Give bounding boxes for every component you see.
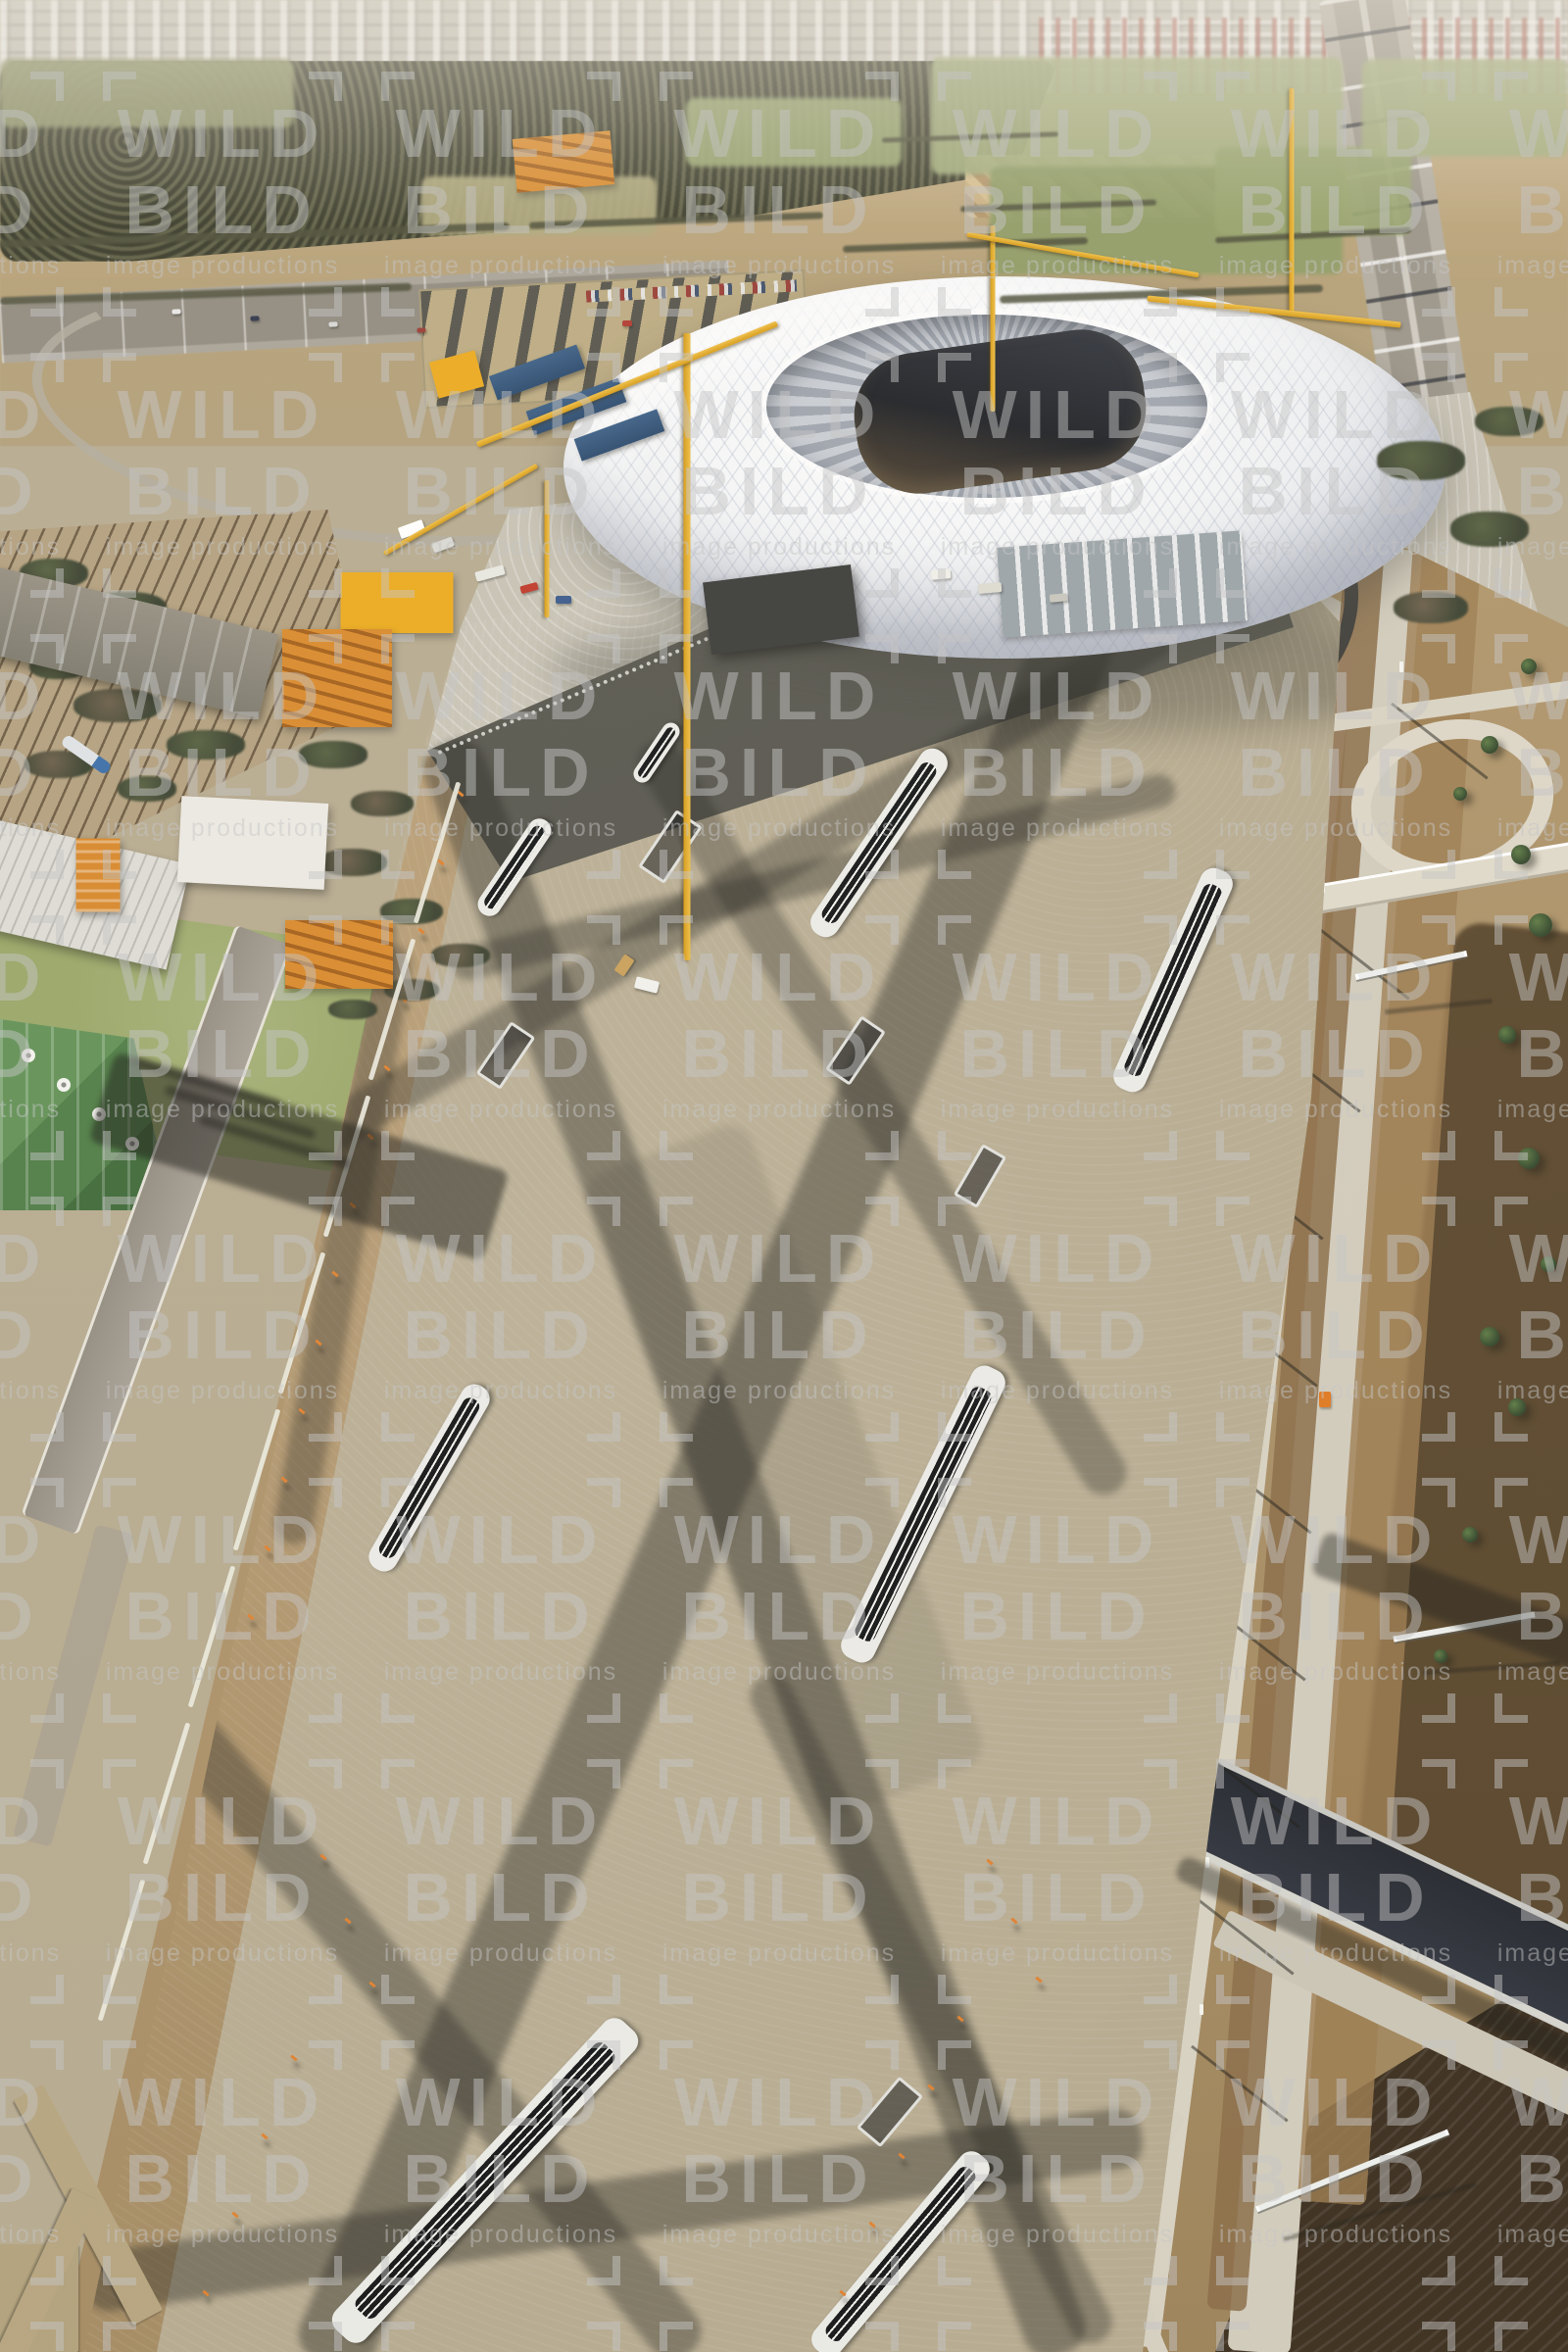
watermark-word: BILD — [936, 2144, 1179, 2213]
watermark-word: BILD — [0, 1019, 66, 1088]
watermark-word: WILD — [936, 380, 1179, 449]
watermark-corner-mark — [587, 568, 620, 598]
watermark-word: WILD — [1214, 943, 1457, 1011]
watermark-word: BILD — [101, 2144, 344, 2213]
watermark-subtitle: image productions — [1214, 1377, 1457, 1405]
site-object — [634, 976, 660, 993]
watermark-word: WILD — [1493, 661, 1568, 730]
watermark-corner-mark — [865, 287, 899, 317]
watermark-word: WILD — [1493, 380, 1568, 449]
watermark-subtitle: image productions — [1214, 252, 1457, 280]
watermark-word: BILD — [0, 457, 66, 525]
watermark-word: BILD — [0, 738, 66, 807]
watermark-word: WILD — [0, 380, 66, 449]
watermark-word: WILD — [936, 661, 1179, 730]
watermark-corner-mark — [587, 1975, 620, 2004]
watermark-corner-mark — [1494, 287, 1528, 317]
watermark-tile: WILDBILDimage productions — [1214, 634, 1457, 879]
watermark-word: WILD — [1493, 1224, 1568, 1293]
watermark-word: WILD — [1214, 1224, 1457, 1293]
watermark-tile: WILDBILDimage productions — [379, 2040, 622, 2285]
watermark-corner-mark — [1494, 2256, 1528, 2285]
watermark-corner-mark — [30, 1975, 64, 2004]
watermark-tile: WILDBILDimage productions — [0, 1197, 66, 1442]
watermark-tile: WILDBILDimage productions — [936, 1759, 1179, 2004]
watermark-corner-mark — [1144, 568, 1177, 598]
watermark-corner-mark — [938, 1412, 971, 1442]
watermark-corner-mark — [1144, 850, 1177, 879]
watermark-tile: WILDBILDimage productions — [101, 2322, 344, 2352]
watermark-tile: WILDBILDimage productions — [379, 915, 622, 1160]
watermark-corner-mark — [1216, 568, 1249, 598]
watermark-corner-mark — [1422, 1131, 1455, 1160]
watermark-word: WILD — [379, 2068, 622, 2136]
watermark-word: BILD — [1493, 457, 1568, 525]
watermark-corner-mark — [30, 1131, 64, 1160]
watermark-word: WILD — [101, 1787, 344, 1855]
watermark-tile: WILDBILDimage productions — [936, 2322, 1179, 2352]
watermark-word: WILD — [658, 1505, 901, 1574]
watermark-subtitle: image productions — [0, 533, 66, 562]
watermark-word: WILD — [101, 99, 344, 168]
survey-stake — [839, 2290, 846, 2297]
watermark-corner-mark — [1216, 1131, 1249, 1160]
site-object — [416, 327, 425, 332]
watermark-word: BILD — [379, 457, 622, 525]
watermark-word: BILD — [658, 1300, 901, 1369]
watermark-corner-mark — [103, 1693, 136, 1723]
watermark-subtitle: image productions — [936, 1658, 1179, 1687]
watermark-word: WILD — [658, 661, 901, 730]
watermark-corner-mark — [309, 1693, 342, 1723]
watermark-corner-mark — [103, 850, 136, 879]
watermark-word: BILD — [936, 1300, 1179, 1369]
watermark-corner-mark — [1422, 2256, 1455, 2285]
watermark-subtitle: image productions — [0, 1658, 66, 1687]
watermark-subtitle: image productions — [658, 2221, 901, 2249]
watermark-word: WILD — [379, 380, 622, 449]
watermark-word: WILD — [1493, 1787, 1568, 1855]
survey-stake — [927, 2084, 934, 2091]
watermark-tile: WILDBILDimage productions — [936, 2040, 1179, 2285]
watermark-subtitle: image productions — [1493, 1377, 1568, 1405]
watermark-subtitle: image productions — [658, 1096, 901, 1124]
watermark-corner-mark — [381, 2256, 415, 2285]
watermark-subtitle: image productions — [379, 1658, 622, 1687]
watermark-word: BILD — [1214, 2144, 1457, 2213]
watermark-word: BILD — [658, 1019, 901, 1088]
watermark-subtitle: image productions — [379, 814, 622, 843]
watermark-tile: WILDBILDimage productions — [101, 1478, 344, 1723]
watermark-corner-mark — [1494, 1693, 1528, 1723]
watermark-word: WILD — [936, 943, 1179, 1011]
watermark-corner-mark — [660, 1975, 693, 2004]
watermark-subtitle: image productions — [658, 1658, 901, 1687]
watermark-corner-mark — [865, 1975, 899, 2004]
watermark-corner-mark — [1144, 1975, 1177, 2004]
watermark-subtitle: image productions — [1493, 814, 1568, 843]
watermark-word: WILD — [1493, 1505, 1568, 1574]
watermark-word: BILD — [1214, 1863, 1457, 1932]
watermark-word: WILD — [936, 2068, 1179, 2136]
watermark-word: WILD — [0, 661, 66, 730]
watermark-tile: WILDBILDimage productions — [1493, 353, 1568, 598]
watermark-tile: WILDBILDimage productions — [0, 1478, 66, 1723]
watermark-word: WILD — [658, 2068, 901, 2136]
watermark-corner-mark — [938, 568, 971, 598]
watermark-corner-mark — [938, 1975, 971, 2004]
watermark-subtitle: image productions — [379, 1377, 622, 1405]
watermark-word: WILD — [379, 1224, 622, 1293]
watermark-tile: WILDBILDimage productions — [1493, 1759, 1568, 2004]
watermark-tile: WILDBILDimage productions — [1493, 2040, 1568, 2285]
watermark-subtitle: image productions — [101, 533, 344, 562]
watermark-word: BILD — [1493, 1300, 1568, 1369]
watermark-corner-mark — [309, 568, 342, 598]
watermark-word: WILD — [101, 1505, 344, 1574]
watermark-corner-mark — [938, 850, 971, 879]
watermark-tile: WILDBILDimage productions — [658, 634, 901, 879]
survey-stake — [368, 1982, 375, 1988]
watermark-tile: WILDBILDimage productions — [0, 915, 66, 1160]
watermark-corner-mark — [938, 1693, 971, 1723]
watermark-corner-mark — [1494, 1131, 1528, 1160]
watermark-corner-mark — [587, 287, 620, 317]
watermark-corner-mark — [938, 287, 971, 317]
watermark-corner-mark — [865, 1693, 899, 1723]
watermark-tile: WILDBILDimage productions — [1214, 915, 1457, 1160]
watermark-tile: WILDBILDimage productions — [1214, 353, 1457, 598]
watermark-corner-mark — [587, 2256, 620, 2285]
watermark-corner-mark — [1422, 287, 1455, 317]
watermark-word: WILD — [1214, 1787, 1457, 1855]
watermark-tile: WILDBILDimage productions — [1214, 1759, 1457, 2004]
watermark-tile: WILDBILDimage productions — [936, 353, 1179, 598]
watermark-word: BILD — [658, 457, 901, 525]
watermark-subtitle: image productions — [0, 1377, 66, 1405]
watermark-word: WILD — [0, 1787, 66, 1855]
watermark-corner-mark — [1216, 287, 1249, 317]
watermark-word: BILD — [379, 1300, 622, 1369]
watermark-tile: WILDBILDimage productions — [1493, 72, 1568, 317]
watermark-tile: WILDBILDimage productions — [936, 1478, 1179, 1723]
watermark-subtitle: image productions — [379, 1939, 622, 1968]
watermark-tile: WILDBILDimage productions — [379, 634, 622, 879]
watermark-word: BILD — [101, 175, 344, 244]
watermark-word: WILD — [1214, 661, 1457, 730]
watermark-corner-mark — [865, 2256, 899, 2285]
watermark-word: BILD — [936, 738, 1179, 807]
watermark-word: WILD — [0, 1224, 66, 1293]
watermark-word: WILD — [1493, 2068, 1568, 2136]
site-object — [328, 321, 337, 326]
watermark-corner-mark — [381, 1975, 415, 2004]
watermark-corner-mark — [309, 1131, 342, 1160]
watermark-tile: WILDBILDimage productions — [936, 72, 1179, 317]
watermark-word: BILD — [0, 2144, 66, 2213]
survey-stake — [956, 2016, 963, 2023]
watermark-corner-mark — [1216, 1412, 1249, 1442]
watermark-subtitle: image productions — [1493, 533, 1568, 562]
watermark-corner-mark — [381, 850, 415, 879]
watermark-tile: WILDBILDimage productions — [379, 72, 622, 317]
watermark-tile: WILDBILDimage productions — [101, 2040, 344, 2285]
watermark-word: BILD — [0, 1300, 66, 1369]
watermark-subtitle: image productions — [1493, 1658, 1568, 1687]
watermark-corner-mark — [30, 850, 64, 879]
watermark-corner-mark — [1216, 1693, 1249, 1723]
watermark-word: WILD — [101, 1224, 344, 1293]
watermark-corner-mark — [865, 1131, 899, 1160]
watermark-corner-mark — [309, 2256, 342, 2285]
watermark-corner-mark — [103, 1131, 136, 1160]
watermark-word: WILD — [379, 99, 622, 168]
watermark-word: WILD — [936, 1224, 1179, 1293]
watermark-word: BILD — [1493, 1019, 1568, 1088]
watermark-word: WILD — [101, 943, 344, 1011]
watermark-word: BILD — [658, 738, 901, 807]
watermark-tile: WILDBILDimage productions — [101, 1759, 344, 2004]
watermark-corner-mark — [865, 850, 899, 879]
watermark-word: WILD — [1214, 380, 1457, 449]
aerial-photo-stadium-construction: WILDBILDimage productionsWILDBILDimage p… — [0, 0, 1568, 2352]
watermark-word: BILD — [101, 1019, 344, 1088]
watermark-word: BILD — [0, 1582, 66, 1650]
watermark-word: BILD — [1214, 457, 1457, 525]
watermark-corner-mark — [1494, 850, 1528, 879]
watermark-word: WILD — [379, 943, 622, 1011]
watermark-subtitle: image productions — [101, 1939, 344, 1968]
watermark-subtitle: image productions — [379, 1096, 622, 1124]
watermark-corner-mark — [660, 1693, 693, 1723]
watermark-word: BILD — [658, 2144, 901, 2213]
watermark-tile: WILDBILDimage productions — [101, 1197, 344, 1442]
watermark-corner-mark — [587, 1693, 620, 1723]
watermark-corner-mark — [1422, 850, 1455, 879]
watermark-corner-mark — [309, 287, 342, 317]
watermark-subtitle: image productions — [101, 1658, 344, 1687]
watermark-word: WILD — [936, 99, 1179, 168]
watermark-corner-mark — [1216, 850, 1249, 879]
watermark-corner-mark — [660, 850, 693, 879]
watermark-tile: WILDBILDimage productions — [1493, 1197, 1568, 1442]
watermark-corner-mark — [938, 1131, 971, 1160]
watermark-subtitle: image productions — [1214, 533, 1457, 562]
watermark-subtitle: image productions — [1493, 252, 1568, 280]
watermark-subtitle: image productions — [1214, 2221, 1457, 2249]
watermark-subtitle: image productions — [658, 1939, 901, 1968]
watermark-word: BILD — [379, 738, 622, 807]
watermark-tile: WILDBILDimage productions — [1493, 634, 1568, 879]
survey-stake — [202, 2290, 209, 2297]
watermark-word: BILD — [379, 1863, 622, 1932]
watermark-corner-mark — [587, 1412, 620, 1442]
watermark-word: WILD — [379, 1505, 622, 1574]
watermark-subtitle: image productions — [0, 252, 66, 280]
watermark-word: BILD — [379, 1019, 622, 1088]
watermark-tile: WILDBILDimage productions — [1214, 72, 1457, 317]
watermark-word: BILD — [1493, 1863, 1568, 1932]
watermark-corner-mark — [1422, 568, 1455, 598]
watermark-corner-mark — [1422, 1412, 1455, 1442]
watermark-corner-mark — [30, 1412, 64, 1442]
watermark-word: BILD — [1493, 1582, 1568, 1650]
watermark-corner-mark — [587, 850, 620, 879]
watermark-subtitle: image productions — [1493, 1939, 1568, 1968]
site-object — [622, 320, 632, 326]
watermark-corner-mark — [30, 287, 64, 317]
watermark-word: BILD — [1493, 738, 1568, 807]
watermark-tile: WILDBILDimage productions — [658, 353, 901, 598]
survey-stake — [349, 1202, 356, 1209]
watermark-corner-mark — [1422, 1693, 1455, 1723]
watermark-subtitle: image productions — [936, 1377, 1179, 1405]
watermark-corner-mark — [103, 2256, 136, 2285]
watermark-word: BILD — [101, 1300, 344, 1369]
watermark-tile: WILDBILDimage productions — [101, 915, 344, 1160]
watermark-corner-mark — [660, 568, 693, 598]
watermark-word: WILD — [658, 99, 901, 168]
watermark-word: BILD — [101, 1863, 344, 1932]
watermark-tile: WILDBILDimage productions — [0, 353, 66, 598]
watermark-corner-mark — [1422, 1975, 1455, 2004]
watermark-tile: WILDBILDimage productions — [379, 1759, 622, 2004]
watermark-tile: WILDBILDimage productions — [1214, 2322, 1457, 2352]
watermark-tile: WILDBILDimage productions — [936, 915, 1179, 1160]
watermark-tile: WILDBILDimage productions — [0, 2322, 66, 2352]
watermark-word: WILD — [936, 1787, 1179, 1855]
watermark-tile: WILDBILDimage productions — [658, 1759, 901, 2004]
watermark-word: WILD — [379, 1787, 622, 1855]
watermark-word: WILD — [658, 1224, 901, 1293]
watermark-subtitle: image productions — [936, 814, 1179, 843]
watermark-word: BILD — [936, 1863, 1179, 1932]
watermark-corner-mark — [1144, 287, 1177, 317]
watermark-word: BILD — [936, 457, 1179, 525]
watermark-word: WILD — [0, 1505, 66, 1574]
watermark-corner-mark — [381, 1693, 415, 1723]
watermark-word: WILD — [1214, 99, 1457, 168]
watermark-subtitle: image productions — [0, 1939, 66, 1968]
watermark-corner-mark — [309, 1412, 342, 1442]
watermark-subtitle: image productions — [0, 1096, 66, 1124]
watermark-tile: WILDBILDimage productions — [101, 634, 344, 879]
watermark-subtitle: image productions — [1214, 1658, 1457, 1687]
watermark-word: BILD — [1493, 175, 1568, 244]
watermark-subtitle: image productions — [936, 1939, 1179, 1968]
watermark-word: BILD — [1214, 1582, 1457, 1650]
watermark-subtitle: image productions — [658, 533, 901, 562]
watermark-tile: WILDBILDimage productions — [658, 72, 901, 317]
survey-stake — [367, 1134, 373, 1141]
lamp-post — [1205, 1857, 1209, 1868]
watermark-corner-mark — [660, 1131, 693, 1160]
watermark-subtitle: image productions — [1214, 1939, 1457, 1968]
watermark-corner-mark — [587, 1131, 620, 1160]
watermark-corner-mark — [865, 568, 899, 598]
watermark-word: WILD — [101, 380, 344, 449]
watermark-word: WILD — [0, 2068, 66, 2136]
watermark-subtitle: image productions — [936, 1096, 1179, 1124]
watermark-corner-mark — [660, 1412, 693, 1442]
watermark-tile: WILDBILDimage productions — [658, 1478, 901, 1723]
watermark-word: WILD — [1214, 1505, 1457, 1574]
watermark-subtitle: image productions — [658, 1377, 901, 1405]
watermark-subtitle: image productions — [379, 2221, 622, 2249]
watermark-word: BILD — [936, 1582, 1179, 1650]
watermark-tile: WILDBILDimage productions — [0, 634, 66, 879]
watermark-word: BILD — [1214, 738, 1457, 807]
watermark-word: WILD — [658, 380, 901, 449]
watermark-corner-mark — [381, 1412, 415, 1442]
watermark-corner-mark — [103, 287, 136, 317]
watermark-tile: WILDBILDimage productions — [658, 2322, 901, 2352]
watermark-word: BILD — [658, 1863, 901, 1932]
watermark-subtitle: image productions — [379, 252, 622, 280]
watermark-corner-mark — [309, 1975, 342, 2004]
watermark-subtitle: image productions — [1214, 814, 1457, 843]
watermark-word: BILD — [1214, 1300, 1457, 1369]
watermark-word: BILD — [1493, 2144, 1568, 2213]
watermark-word: WILD — [1214, 2068, 1457, 2136]
watermark-subtitle: image productions — [101, 814, 344, 843]
watermark-subtitle: image productions — [0, 814, 66, 843]
watermark-tile: WILDBILDimage productions — [1214, 1478, 1457, 1723]
watermark-corner-mark — [30, 2256, 64, 2285]
watermark-subtitle: image productions — [101, 1096, 344, 1124]
watermark-subtitle: image productions — [101, 1377, 344, 1405]
watermark-corner-mark — [1144, 2256, 1177, 2285]
watermark-word: WILD — [101, 661, 344, 730]
watermark-corner-mark — [381, 1131, 415, 1160]
watermark-corner-mark — [1216, 1975, 1249, 2004]
watermark-subtitle: image productions — [936, 533, 1179, 562]
watermark-word: WILD — [0, 99, 66, 168]
watermark-word: BILD — [936, 175, 1179, 244]
watermark-subtitle: image productions — [1214, 1096, 1457, 1124]
watermark-tile: WILDBILDimage productions — [658, 2040, 901, 2285]
watermark-corner-mark — [660, 287, 693, 317]
watermark-word: WILD — [0, 943, 66, 1011]
watermark-corner-mark — [103, 1412, 136, 1442]
watermark-word: WILD — [658, 943, 901, 1011]
watermark-corner-mark — [660, 2256, 693, 2285]
watermark-word: BILD — [101, 738, 344, 807]
site-object — [250, 316, 259, 320]
watermark-tile: WILDBILDimage productions — [0, 1759, 66, 2004]
watermark-subtitle: image productions — [379, 533, 622, 562]
watermark-corner-mark — [381, 287, 415, 317]
watermark-subtitle: image productions — [658, 814, 901, 843]
watermark-tile: WILDBILDimage productions — [0, 72, 66, 317]
watermark-word: BILD — [379, 2144, 622, 2213]
watermark-corner-mark — [938, 2256, 971, 2285]
watermark-subtitle: image productions — [1493, 2221, 1568, 2249]
watermark-subtitle: image productions — [101, 2221, 344, 2249]
watermark-tile: WILDBILDimage productions — [936, 1197, 1179, 1442]
watermark-corner-mark — [1494, 568, 1528, 598]
watermark-corner-mark — [1494, 1975, 1528, 2004]
planted-tree — [1462, 1527, 1478, 1543]
watermark-corner-mark — [1216, 2256, 1249, 2285]
watermark-tile: WILDBILDimage productions — [1214, 1197, 1457, 1442]
watermark-corner-mark — [1144, 1693, 1177, 1723]
watermark-word: BILD — [379, 1582, 622, 1650]
watermark-subtitle: image productions — [936, 2221, 1179, 2249]
watermark-word: BILD — [101, 457, 344, 525]
watermark-word: BILD — [0, 175, 66, 244]
watermark-corner-mark — [1494, 1412, 1528, 1442]
